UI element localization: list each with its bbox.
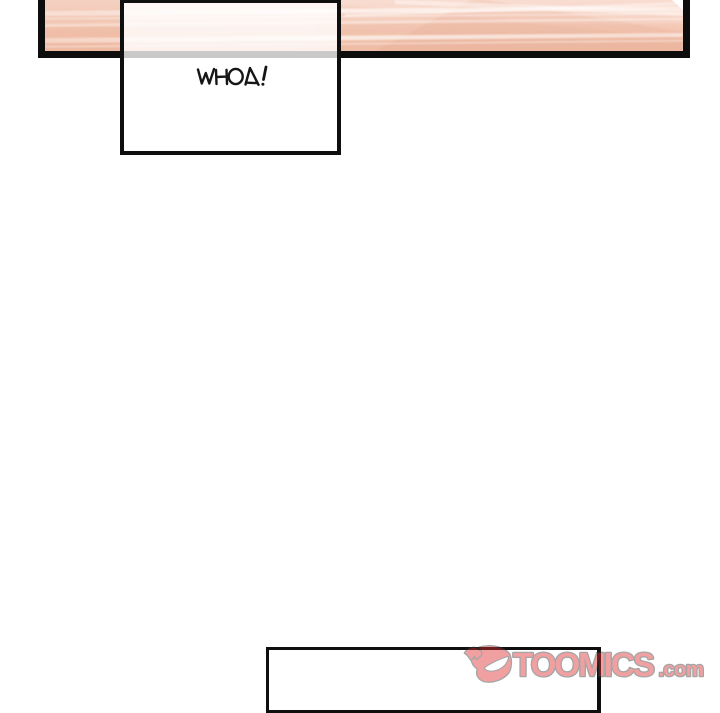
svg-text:.com: .com xyxy=(659,658,704,681)
svg-text:TOOMICS: TOOMICS xyxy=(513,646,654,683)
